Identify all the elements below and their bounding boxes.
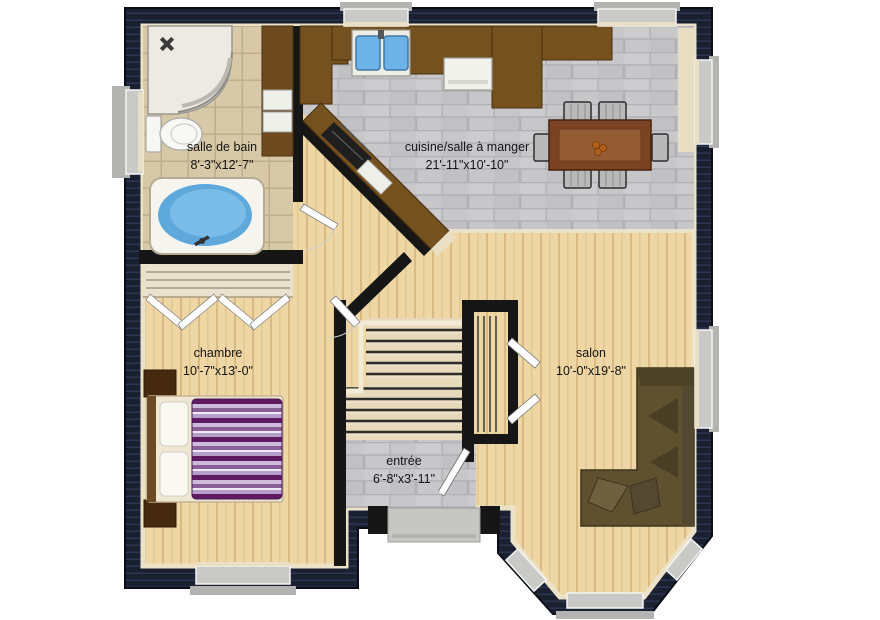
bay-exterior-sill [556, 611, 654, 619]
porch-jamb-right [480, 506, 500, 534]
room-dims-entry: 6'-8"x3'-11" [373, 472, 435, 486]
dining-chair [534, 134, 550, 161]
room-label-salon: salon [576, 346, 606, 360]
room-label-bathroom: salle de bain [187, 140, 257, 154]
bathtub [150, 178, 264, 254]
floor-plan-canvas: salle de bain 8'-3"x12'-7" cuisine/salle… [0, 0, 880, 620]
closet-interior [143, 264, 293, 298]
porch-step-edge [392, 534, 476, 538]
bedroom-closet [143, 264, 293, 298]
sink-faucet-icon [378, 30, 384, 39]
pillow [160, 402, 188, 446]
wall-stairs-right [462, 300, 474, 446]
window-right-kitchen [695, 56, 719, 148]
room-dims-salon: 10'-0"x19'-8" [556, 364, 626, 378]
room-dims-bedroom: 10'-7"x13'-0" [183, 364, 253, 378]
window-right-salon [695, 326, 719, 432]
window-bathroom-left [112, 86, 143, 178]
room-dims-kitchen: 21'-11"x10'-10" [426, 158, 509, 172]
duvet [192, 399, 282, 499]
sofa-back [637, 368, 694, 386]
pillow [160, 452, 188, 496]
nightstand [144, 370, 176, 397]
room-label-bedroom: chambre [194, 346, 243, 360]
window-top-dining [594, 2, 680, 26]
wall-bedroom-right [334, 300, 346, 566]
floor-plan: salle de bain 8'-3"x12'-7" cuisine/salle… [0, 0, 880, 620]
headboard [147, 396, 156, 502]
room-label-entry: entrée [386, 454, 421, 468]
nightstand [144, 500, 176, 527]
bay-window-bottom [567, 593, 643, 608]
dishwasher-handle [448, 80, 488, 84]
dishwasher [444, 58, 492, 90]
dryer [263, 112, 292, 132]
window-top-kitchen [340, 2, 412, 26]
kitchen-sink [352, 30, 410, 76]
washer [263, 90, 292, 110]
kitchen-threshold [425, 229, 694, 233]
dining-chair [652, 134, 668, 161]
window-bedroom-bottom [190, 562, 296, 595]
bathroom-cabinets [262, 26, 293, 156]
room-label-kitchen: cuisine/salle à manger [405, 140, 529, 154]
sofa-arm [682, 386, 694, 526]
room-dims-bathroom: 8'-3"x12'-7" [191, 158, 254, 172]
bed [147, 396, 283, 502]
dining-table-panel [559, 129, 641, 161]
right-wall-lining [678, 28, 694, 152]
counter-corner-section [492, 26, 542, 108]
porch-jamb-left [368, 506, 388, 534]
